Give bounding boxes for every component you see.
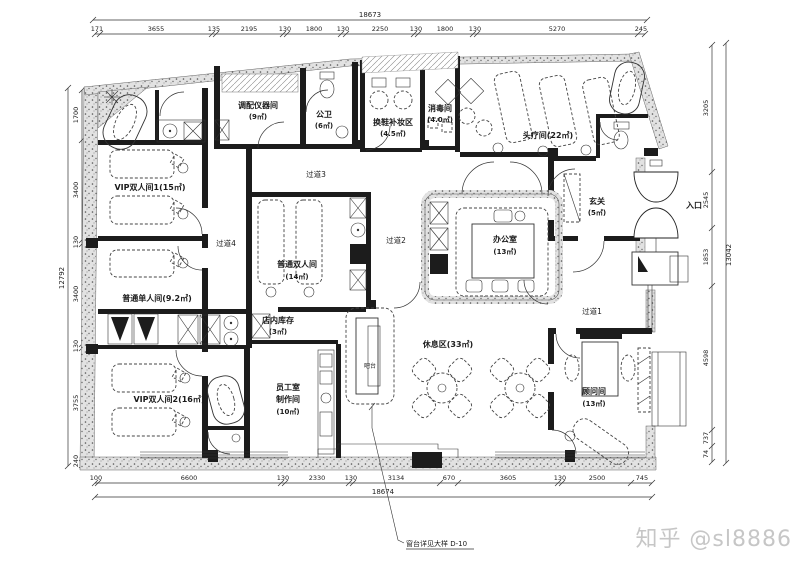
dim-text: 2250	[372, 25, 389, 33]
dim-text: 1800	[306, 25, 323, 33]
room-label-single: 普通单人间(9.2㎡)	[122, 293, 191, 303]
room-label-bar: 吧台	[364, 362, 376, 370]
room-area-foyer: (5㎡)	[588, 208, 606, 217]
dim-text: 3400	[72, 182, 80, 199]
floorplan-page: 18673 171 3655 135 2195 130 1800 130 225…	[0, 0, 800, 563]
canopy-hatch	[362, 52, 458, 73]
room-area-stock: (3㎡)	[269, 327, 287, 336]
room-area-wc: (6㎡)	[315, 121, 333, 130]
dim-text: 130	[554, 474, 566, 482]
dim-text: 4598	[702, 350, 710, 367]
equipment-shelf	[222, 74, 298, 92]
room-area-disinfect: (4.0㎡)	[427, 115, 453, 124]
dim-text: 670	[443, 474, 455, 482]
dim-text: 6600	[181, 474, 198, 482]
dim-text: 2330	[309, 474, 326, 482]
room-label-staff2: 制作间	[276, 394, 300, 404]
shower-door-arc	[160, 92, 184, 116]
room-label-staff: 员工室	[276, 382, 300, 392]
dim-text: 130	[410, 25, 422, 33]
room-area-shoe: (4.5㎡)	[380, 129, 406, 138]
room-label-double: 普通双人间	[277, 259, 317, 269]
room-label-vip1: VIP双人间1(15㎡)	[114, 182, 185, 192]
dim-text: 171	[91, 25, 103, 33]
room-area-double: (14㎡)	[285, 272, 308, 281]
floorplan-drawing: 18673 171 3655 135 2195 130 1800 130 225…	[0, 0, 800, 563]
dim-text: 1800	[437, 25, 454, 33]
dim-text: 130	[72, 236, 80, 248]
corridor-label-1: 过道1	[582, 306, 602, 316]
dim-text: 130	[277, 474, 289, 482]
dim-text: 3205	[702, 100, 710, 117]
entrance-door	[634, 160, 678, 252]
dim-text: 3605	[500, 474, 517, 482]
entrance-label: 入口	[685, 201, 702, 210]
room-label-head: 头疗间(22㎡)	[523, 130, 573, 140]
room-area-staff: (10㎡)	[276, 407, 299, 416]
consult-furniture	[565, 332, 686, 426]
corridor-label-4: 过道4	[216, 238, 236, 248]
dim-text: 130	[72, 340, 80, 352]
watermark: 知乎 @sl8886	[635, 521, 792, 553]
sink-counter	[157, 120, 205, 142]
double-room-closet	[350, 198, 366, 290]
foyer-closet	[564, 174, 580, 222]
room-label-vip2: VIP双人间2(16㎡)	[133, 394, 204, 404]
leader-note: 窗台详见大样 D-10	[369, 403, 474, 549]
staff-counter	[318, 350, 334, 454]
showerhead-icon	[232, 434, 240, 442]
dim-text: 737	[702, 432, 710, 444]
single-bed	[110, 250, 188, 277]
room-label-rest: 休息区(33㎡)	[422, 339, 473, 349]
office-furniture	[430, 202, 548, 296]
dim-text: 2195	[241, 25, 258, 33]
room-label-stock: 店内库存	[262, 315, 294, 325]
dim-text: 1700	[72, 107, 80, 124]
dim-text: 3655	[148, 25, 165, 33]
corridor-label-3: 过道3	[306, 169, 326, 179]
double-room-beds	[258, 200, 322, 297]
wet-tub	[204, 373, 247, 428]
dim-text: 745	[636, 474, 648, 482]
dim-text: 130	[345, 474, 357, 482]
room-area-equip: (9㎡)	[249, 112, 267, 121]
dim-text: 245	[635, 25, 647, 33]
xbox-icon	[184, 122, 202, 140]
bar-counter	[346, 308, 394, 404]
rest-table-2	[488, 356, 552, 420]
room-area-office: (13㎡)	[493, 247, 516, 256]
dim-text: 74	[702, 450, 710, 458]
room-label-equip: 调配仪器间	[238, 100, 278, 110]
rest-table-1	[410, 356, 474, 420]
room-area-consult: (13㎡)	[582, 399, 605, 408]
dim-text: 5270	[549, 25, 566, 33]
dim-text: 3400	[72, 286, 80, 303]
room-label-disinfect: 消毒间	[428, 103, 452, 113]
head-wc-toilet-icon	[614, 122, 629, 149]
dim-text: 130	[279, 25, 291, 33]
dim-text: 240	[72, 455, 80, 467]
dim-right-total: 13042	[725, 244, 733, 266]
dim-text: 135	[208, 25, 220, 33]
dim-text: 130	[337, 25, 349, 33]
shoe-area-fixtures	[370, 78, 412, 109]
dim-text: 3134	[388, 474, 405, 482]
corridor-label-2: 过道2	[386, 235, 406, 245]
dim-left-total: 12792	[58, 267, 66, 289]
dim-bottom-seg-line	[92, 480, 655, 486]
room-label-shoe: 换鞋补妆区	[373, 117, 413, 127]
wc-sink-icon	[336, 126, 348, 138]
detail-note: 窗台详见大样 D-10	[406, 539, 467, 548]
toilet-icon	[320, 72, 334, 98]
utility-fixtures	[108, 314, 238, 346]
room-label-office: 办公室	[493, 234, 517, 244]
dim-top-total: 18673	[359, 11, 381, 19]
dim-text: 100	[90, 474, 102, 482]
plant-icon	[104, 89, 120, 105]
room-label-consult: 顾问间	[582, 386, 606, 396]
dim-text: 2500	[589, 474, 606, 482]
dim-text: 3755	[72, 395, 80, 412]
room-label-foyer: 玄关	[589, 196, 605, 206]
dim-text: 2545	[702, 192, 710, 209]
bay-window	[632, 252, 688, 330]
dim-text: 130	[469, 25, 481, 33]
dim-text: 1853	[702, 249, 710, 266]
outer-walls	[80, 52, 668, 470]
dim-bottom-total: 18674	[372, 488, 395, 496]
room-label-wc: 公卫	[316, 110, 332, 119]
